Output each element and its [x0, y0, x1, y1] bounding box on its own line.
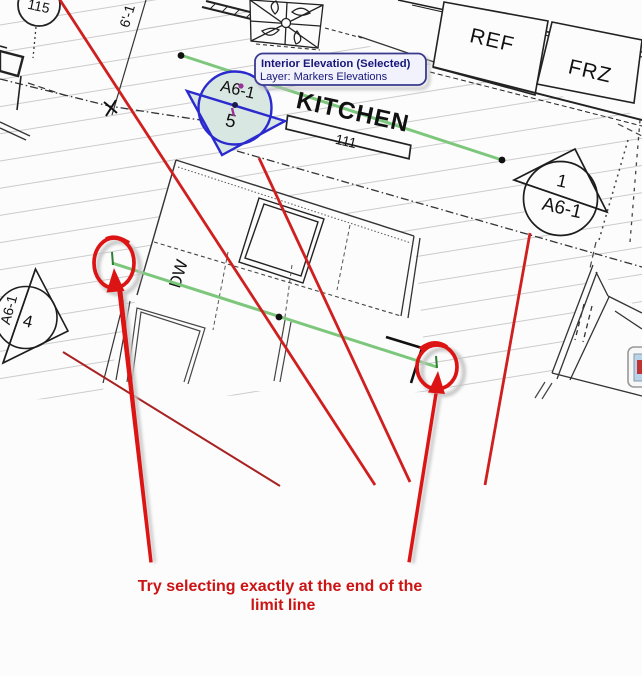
svg-text:Layer: Markers Elevations: Layer: Markers Elevations: [260, 71, 388, 83]
svg-text:Try selecting exactly at the e: Try selecting exactly at the end of the: [138, 578, 423, 595]
svg-text:Interior Elevation (Selected): Interior Elevation (Selected): [261, 58, 411, 70]
svg-text:limit line: limit line: [251, 597, 316, 614]
